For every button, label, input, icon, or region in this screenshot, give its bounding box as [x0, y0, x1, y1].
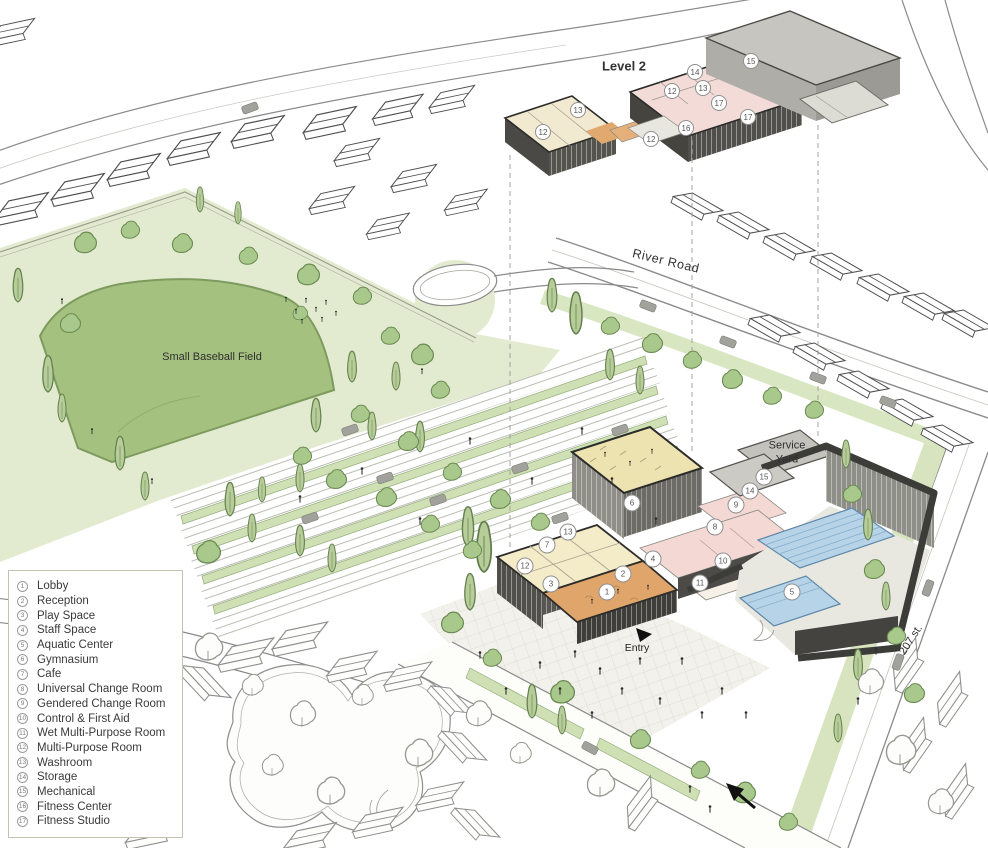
legend-label: Fitness Studio: [37, 815, 110, 827]
room-marker-level1-5: 5: [784, 584, 801, 601]
legend-label: Control & First Aid: [37, 713, 130, 725]
room-marker-level1-8: 8: [707, 519, 724, 536]
legend-item: 7Cafe: [17, 667, 176, 682]
legend-item: 3Play Space: [17, 608, 176, 623]
room-marker-level1-4: 4: [645, 551, 662, 568]
room-marker-level1-1: 1: [599, 584, 616, 601]
legend-item: 15Mechanical: [17, 785, 176, 800]
legend-label: Washroom: [37, 757, 92, 769]
legend-item: 4Staff Space: [17, 623, 176, 638]
room-marker-level2-12: 12: [664, 83, 680, 99]
legend-number-badge: 4: [17, 625, 28, 636]
room-marker-level2-17: 17: [711, 95, 727, 111]
legend-label: Universal Change Room: [37, 683, 162, 695]
legend-label: Play Space: [37, 610, 95, 622]
legend-label: Storage: [37, 771, 77, 783]
legend-item: 16Fitness Center: [17, 799, 176, 814]
legend-item: 11Wet Multi-Purpose Room: [17, 726, 176, 741]
legend-number-badge: 3: [17, 610, 28, 621]
legend-number-badge: 8: [17, 684, 28, 695]
legend-item: 6Gymnasium: [17, 652, 176, 667]
room-marker-level1-10: 10: [715, 553, 732, 570]
room-marker-level2-16: 16: [678, 120, 694, 136]
legend-number-badge: 17: [17, 816, 28, 827]
legend-number-badge: 13: [17, 757, 28, 768]
room-marker-level1-11: 11: [692, 575, 709, 592]
legend-item: 10Control & First Aid: [17, 711, 176, 726]
room-marker-level2-17: 17: [740, 109, 756, 125]
room-marker-level1-15: 15: [756, 469, 773, 486]
legend-number-badge: 5: [17, 640, 28, 651]
legend-number-badge: 14: [17, 772, 28, 783]
entry-label: Entry: [625, 642, 650, 654]
legend-item: 5Aquatic Center: [17, 638, 176, 653]
legend-item: 12Multi-Purpose Room: [17, 741, 176, 756]
legend: 1Lobby2Reception3Play Space4Staff Space5…: [8, 570, 183, 838]
room-marker-level1-12: 12: [517, 558, 534, 575]
room-marker-level1-2: 2: [615, 566, 632, 583]
legend-item: 17Fitness Studio: [17, 814, 176, 829]
legend-list: 1Lobby2Reception3Play Space4Staff Space5…: [17, 579, 176, 829]
legend-label: Reception: [37, 595, 89, 607]
legend-label: Gendered Change Room: [37, 698, 166, 710]
room-marker-level1-9: 9: [728, 497, 745, 514]
legend-label: Mechanical: [37, 786, 95, 798]
legend-item: 9Gendered Change Room: [17, 697, 176, 712]
legend-item: 13Washroom: [17, 755, 176, 770]
service-yard-label: Service Yard: [758, 439, 816, 467]
legend-label: Staff Space: [37, 624, 96, 636]
legend-number-badge: 16: [17, 801, 28, 812]
legend-label: Aquatic Center: [37, 639, 113, 651]
legend-item: 8Universal Change Room: [17, 682, 176, 697]
room-marker-level1-14: 14: [742, 483, 759, 500]
room-marker-level2-15: 15: [743, 53, 759, 69]
room-marker-level2-14: 14: [687, 64, 703, 80]
baseball-field-label: Small Baseball Field: [162, 351, 262, 363]
room-marker-level2-12: 12: [535, 124, 551, 140]
legend-label: Gymnasium: [37, 654, 98, 666]
legend-number-badge: 1: [17, 581, 28, 592]
legend-label: Wet Multi-Purpose Room: [37, 727, 165, 739]
legend-number-badge: 7: [17, 669, 28, 680]
legend-label: Multi-Purpose Room: [37, 742, 142, 754]
legend-number-badge: 2: [17, 596, 28, 607]
legend-item: 14Storage: [17, 770, 176, 785]
legend-label: Lobby: [37, 580, 68, 592]
room-marker-level2-12: 12: [643, 131, 659, 147]
room-marker-level1-7: 7: [539, 537, 556, 554]
room-marker-level2-13: 13: [695, 80, 711, 96]
site-plan-screenshot: Level 2 River Road Small Baseball Field …: [0, 0, 988, 848]
room-marker-level1-6: 6: [624, 495, 641, 512]
legend-item: 2Reception: [17, 594, 176, 609]
legend-number-badge: 12: [17, 742, 28, 753]
room-marker-level2-13: 13: [570, 102, 586, 118]
legend-item: 1Lobby: [17, 579, 176, 594]
legend-label: Cafe: [37, 668, 61, 680]
legend-number-badge: 15: [17, 786, 28, 797]
room-marker-level1-3: 3: [543, 576, 560, 593]
legend-number-badge: 9: [17, 698, 28, 709]
legend-label: Fitness Center: [37, 801, 112, 813]
room-marker-level1-13: 13: [560, 524, 577, 541]
legend-number-badge: 6: [17, 654, 28, 665]
legend-number-badge: 11: [17, 728, 28, 739]
level2-label: Level 2: [602, 59, 646, 74]
legend-number-badge: 10: [17, 713, 28, 724]
